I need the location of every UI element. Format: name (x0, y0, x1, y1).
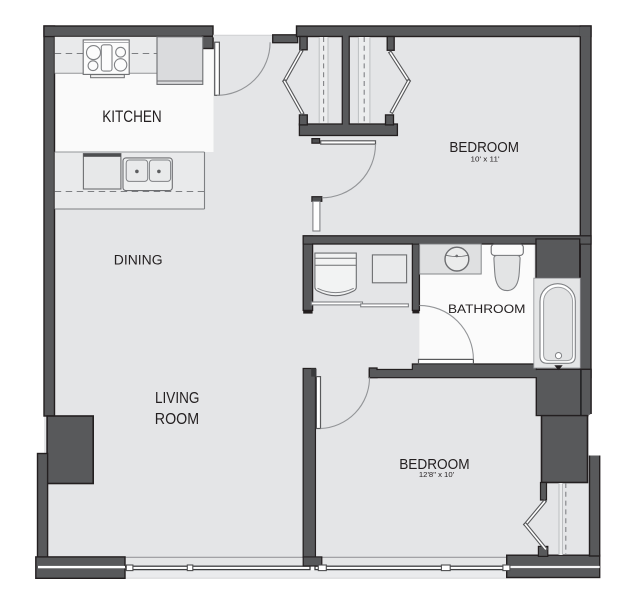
svg-text:LIVING: LIVING (155, 390, 199, 407)
svg-text:10' x 11': 10' x 11' (471, 154, 501, 163)
svg-text:ROOM: ROOM (155, 411, 199, 428)
svg-text:KITCHEN: KITCHEN (102, 108, 162, 126)
svg-text:BATHROOM: BATHROOM (448, 302, 526, 316)
svg-text:12'8" x 10': 12'8" x 10' (419, 470, 455, 479)
svg-text:DINING: DINING (114, 252, 163, 267)
